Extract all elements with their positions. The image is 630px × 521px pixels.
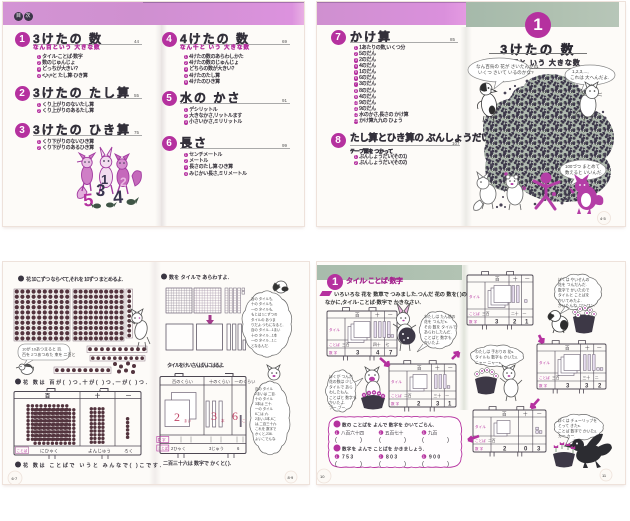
svg-text:数字を よんで ことばを かきましょう.: 数字を よんで ことばを かきましょう. [342, 446, 424, 453]
svg-text:わたしは 手おりの 花s.: わたしは 手おりの 花s. [475, 349, 514, 354]
svg-text:一: 一 [445, 394, 449, 398]
svg-text:タイル: タイル [469, 294, 480, 299]
svg-text:二百: 二百 [488, 438, 496, 443]
svg-text:こ: こ [242, 418, 246, 423]
svg-text:1: 1 [336, 431, 338, 435]
svg-text:タイルと ことばを: タイルと ことばを [558, 293, 590, 298]
svg-text:わしたもん.: わしたもん. [329, 390, 349, 395]
svg-text:十の タイルも,: 十の タイルも, [251, 301, 273, 306]
svg-text:ことば: ことば [329, 342, 340, 347]
svg-text:ことばと 数字も: ことばと 数字も [424, 335, 452, 340]
svg-text:五百七十: 五百七十 [385, 430, 404, 437]
svg-text:よいこでんな.: よいこでんな. [255, 436, 276, 441]
svg-text:花を つんだんだ.: 花を つんだんだ. [558, 282, 587, 287]
svg-text:数 字: 数 字 [329, 350, 338, 355]
svg-text:タイルで あら: タイルで あら [329, 384, 353, 389]
svg-text:いくつ さいて いるのかな?: いくつ さいて いるのかな? [478, 69, 534, 76]
svg-text:ニャー ニャーs.: ニャー ニャーs. [475, 361, 502, 365]
svg-text:一: 一 [126, 394, 131, 400]
svg-text:これは 大へんだよ.: これは 大へんだよ. [570, 74, 609, 81]
svg-text:1: 1 [336, 455, 338, 459]
svg-text:十: 十 [513, 276, 518, 283]
svg-text:百を 2つあつめた 束を 二百と: 百を 2つあつめた 束を 二百と [22, 351, 76, 357]
svg-text:8·9: 8·9 [288, 475, 295, 480]
svg-text:一: 一 [522, 312, 526, 316]
svg-text:タイル: タイル [391, 379, 402, 384]
svg-text:三百: 三百 [482, 311, 490, 316]
svg-text:タイルの あつま: タイルの あつま [251, 317, 276, 322]
svg-text:二百三十六は 数字で かくと( ).: 二百三十六は 数字で かくと( ). [163, 460, 231, 467]
svg-text:数 字: 数 字 [391, 401, 400, 406]
svg-text:一: 一 [388, 313, 393, 318]
svg-text:3: 3 [211, 409, 217, 423]
svg-text:りだよ.つもになると,: りだよ.つもになると, [251, 322, 283, 327]
svg-text:二: 二 [595, 376, 599, 380]
svg-text:数 字: 数 字 [158, 437, 166, 442]
svg-text:かいたよ.: かいたよ. [329, 400, 345, 405]
svg-text:三十: 三十 [583, 375, 591, 380]
svg-text:十の タイル...1本: 十の タイル...1本 [251, 332, 278, 337]
svg-text:一: 一 [448, 366, 453, 371]
svg-text:十: 十 [95, 393, 100, 400]
svg-text:2: 2 [380, 431, 382, 435]
svg-text:わたしは たん前の: わたしは たん前の [424, 314, 456, 319]
svg-text:3: 3 [95, 181, 106, 201]
svg-text:数 字: 数 字 [475, 446, 484, 451]
svg-text:三百: 三百 [552, 375, 560, 380]
svg-text:とって きたs.: とって きたs. [558, 423, 581, 428]
svg-text:6: 6 [232, 409, 238, 423]
svg-text:なん百烏の 花が さいたんだね.: なん百烏の 花が さいたんだね. [476, 63, 540, 70]
svg-text:7 5 3: 7 5 3 [342, 455, 353, 461]
svg-text:その 数を タイルで: その 数を タイルで [424, 324, 457, 329]
svg-text:花を つんだ's.: 花を つんだ's. [424, 319, 448, 324]
svg-text:花の数は 少し: 花の数は 少し [329, 379, 353, 384]
svg-text:ろく: ろく [124, 449, 133, 455]
svg-text:一: 一 [525, 277, 530, 282]
svg-text:2まいは 二百.: 2まいは 二百. [255, 391, 276, 396]
svg-text:2: 2 [380, 455, 382, 459]
svg-text:となるんだ.: となるんだ. [251, 343, 269, 348]
svg-text:十: 十 [585, 345, 590, 352]
svg-text:数 字: 数 字 [539, 383, 548, 388]
svg-text:かいたよ.: かいたよ. [424, 340, 440, 345]
svg-text:一の タイル: 一の タイル [255, 406, 274, 411]
svg-text:三十: 三十 [434, 393, 442, 398]
svg-text:2ひゃく: 2ひゃく [171, 446, 186, 452]
svg-text:あらわしたんだ.: あらわしたんだ. [424, 330, 452, 335]
svg-text:かいたんね, ワンワン.: かいたんね, ワンワン. [558, 303, 595, 308]
svg-text:数えると いいんだ.: 数えると いいんだ. [565, 169, 602, 176]
svg-text:3本は 三十.: 3本は 三十. [255, 401, 272, 406]
svg-text:よんじゅう: よんじゅう [88, 449, 111, 455]
svg-text:百の タイルも,: 百の タイルも, [251, 296, 273, 301]
svg-text:百の タイル...1まい: 百の タイル...1まい [251, 327, 281, 332]
svg-text:百: 百 [417, 366, 422, 372]
svg-text:10が 10あつまると 百.: 10が 10あつまると 百. [22, 346, 62, 352]
svg-text:ことば: ことば [158, 446, 169, 451]
svg-text:タイル: タイル [539, 360, 550, 365]
svg-text:本: 本 [221, 418, 225, 423]
svg-text:タイルも 数字も かいたs.: タイルも 数字も かいたs. [475, 354, 518, 359]
svg-text:百: 百 [45, 394, 50, 400]
svg-text:8 0 3: 8 0 3 [386, 455, 397, 461]
svg-text:数 字: 数 字 [469, 319, 478, 324]
svg-text:100づつ まとめて: 100づつ まとめて [565, 163, 600, 169]
svg-text:七: 七 [386, 342, 390, 347]
svg-text:カー カー.: カー カー. [558, 434, 575, 439]
svg-text:3: 3 [423, 455, 425, 459]
svg-text:ブー,ブー.: ブー,ブー. [329, 405, 346, 410]
svg-text:ことば: ことば [17, 448, 28, 453]
svg-text:タイル: タイル [329, 327, 340, 332]
svg-text:6こは 六.: 6こは 六. [255, 411, 269, 416]
svg-text:百: 百 [565, 346, 570, 352]
svg-text:もとは 1こずつの: もとは 1こずつの [251, 312, 278, 317]
svg-text:十: 十 [435, 365, 440, 372]
svg-text:ことばと 数字も: ことばと 数字も [329, 395, 357, 400]
svg-text:ことば: ことば [475, 438, 486, 443]
svg-text:ことば: ことば [391, 393, 402, 398]
svg-text:一の タイルも,: 一の タイルも, [251, 306, 273, 311]
svg-text:1,2,3,...,: 1,2,3,..., [572, 69, 589, 74]
svg-text:ことば: ことば [469, 311, 480, 316]
svg-text:三百: 三百 [342, 342, 350, 347]
svg-text:二百: 二百 [404, 393, 412, 398]
svg-text:これを 数字で: これを 数字で [255, 426, 277, 431]
svg-text:2: 2 [174, 410, 180, 424]
svg-text:百: 百 [355, 313, 360, 319]
svg-text:十のくらい: 十のくらい [209, 378, 230, 385]
svg-text:百: 百 [495, 277, 500, 283]
svg-text:一: 一 [537, 412, 542, 417]
svg-text:は,二百三十六.: は,二百三十六. [255, 421, 277, 426]
svg-text:十の タイル: 十の タイル [255, 396, 274, 401]
svg-text:十: 十 [523, 411, 528, 418]
svg-text:ぼくは やいせんの: ぼくは やいせんの [558, 277, 590, 282]
svg-text:かくと,236.: かくと,236. [255, 431, 273, 436]
svg-text:一の タイル...1こ: 一の タイル...1こ [251, 338, 277, 343]
svg-text:一のくらい: 一のくらい [235, 379, 256, 385]
svg-text:十: 十 [375, 312, 380, 319]
svg-text:6: 6 [237, 446, 240, 451]
svg-text:まい: まい [184, 418, 191, 423]
svg-text:九百: 九百 [428, 430, 438, 437]
svg-text:花 数は ことばで いうと みんなで( )こです.: 花 数は ことばで いうと みんなで( )こです. [23, 462, 161, 469]
svg-text:ことば 数字で かいたs.: ことば 数字で かいたs. [558, 428, 597, 433]
svg-text:ことば: ことば [539, 375, 550, 380]
svg-text:2まい,3本,6こ: 2まい,3本,6こ [255, 416, 276, 421]
svg-text:にひゃく: にひゃく [40, 449, 58, 455]
svg-text:タイル: タイル [475, 424, 486, 429]
svg-text:ぼくは チューリップを: ぼくは チューリップを [558, 418, 597, 423]
svg-text:ぼくが つんだ: ぼくが つんだ [329, 374, 353, 379]
svg-text:数の ことばを よんで 数字を かいてごらん.: 数の ことばを よんで 数字を かいてごらん. [342, 422, 434, 429]
svg-text:数を タイルで あらわすよ.: 数を タイルで あらわすよ. [169, 274, 229, 281]
svg-text:数字で かいたので: 数字で かいたので [558, 287, 590, 292]
svg-text:5: 5 [82, 190, 94, 211]
svg-text:八百六十四: 八百六十四 [341, 430, 364, 437]
svg-text:3じゅう: 3じゅう [209, 446, 224, 452]
svg-text:10: 10 [320, 474, 325, 479]
svg-text:4·5: 4·5 [600, 216, 607, 221]
svg-text:花 10こずつ ならべて,それを 10ずつ まとめるよ.: 花 10こずつ ならべて,それを 10ずつ まとめるよ. [26, 276, 123, 283]
svg-text:二十: 二十 [511, 311, 519, 316]
svg-text:かいてみたよ.: かいてみたよ. [558, 298, 582, 303]
svg-text:百: 百 [502, 412, 507, 418]
svg-text:百のくらい: 百のくらい [172, 379, 193, 385]
svg-text:花 数は 百が( )つ,十が( )つ,一が( )つ.: 花 数は 百が( )つ,十が( )つ,一が( )つ. [23, 379, 147, 386]
svg-text:一: 一 [597, 346, 602, 351]
svg-text:タイルを けいさんばんに はるよ.: タイルを けいさんばんに はるよ. [167, 362, 224, 369]
svg-text:9 0 0: 9 0 0 [429, 455, 440, 461]
svg-text:6·7: 6·7 [12, 476, 19, 481]
svg-text:3: 3 [423, 431, 425, 435]
svg-text:百の タイル: 百の タイル [255, 386, 274, 391]
svg-text:四十: 四十 [373, 342, 381, 347]
